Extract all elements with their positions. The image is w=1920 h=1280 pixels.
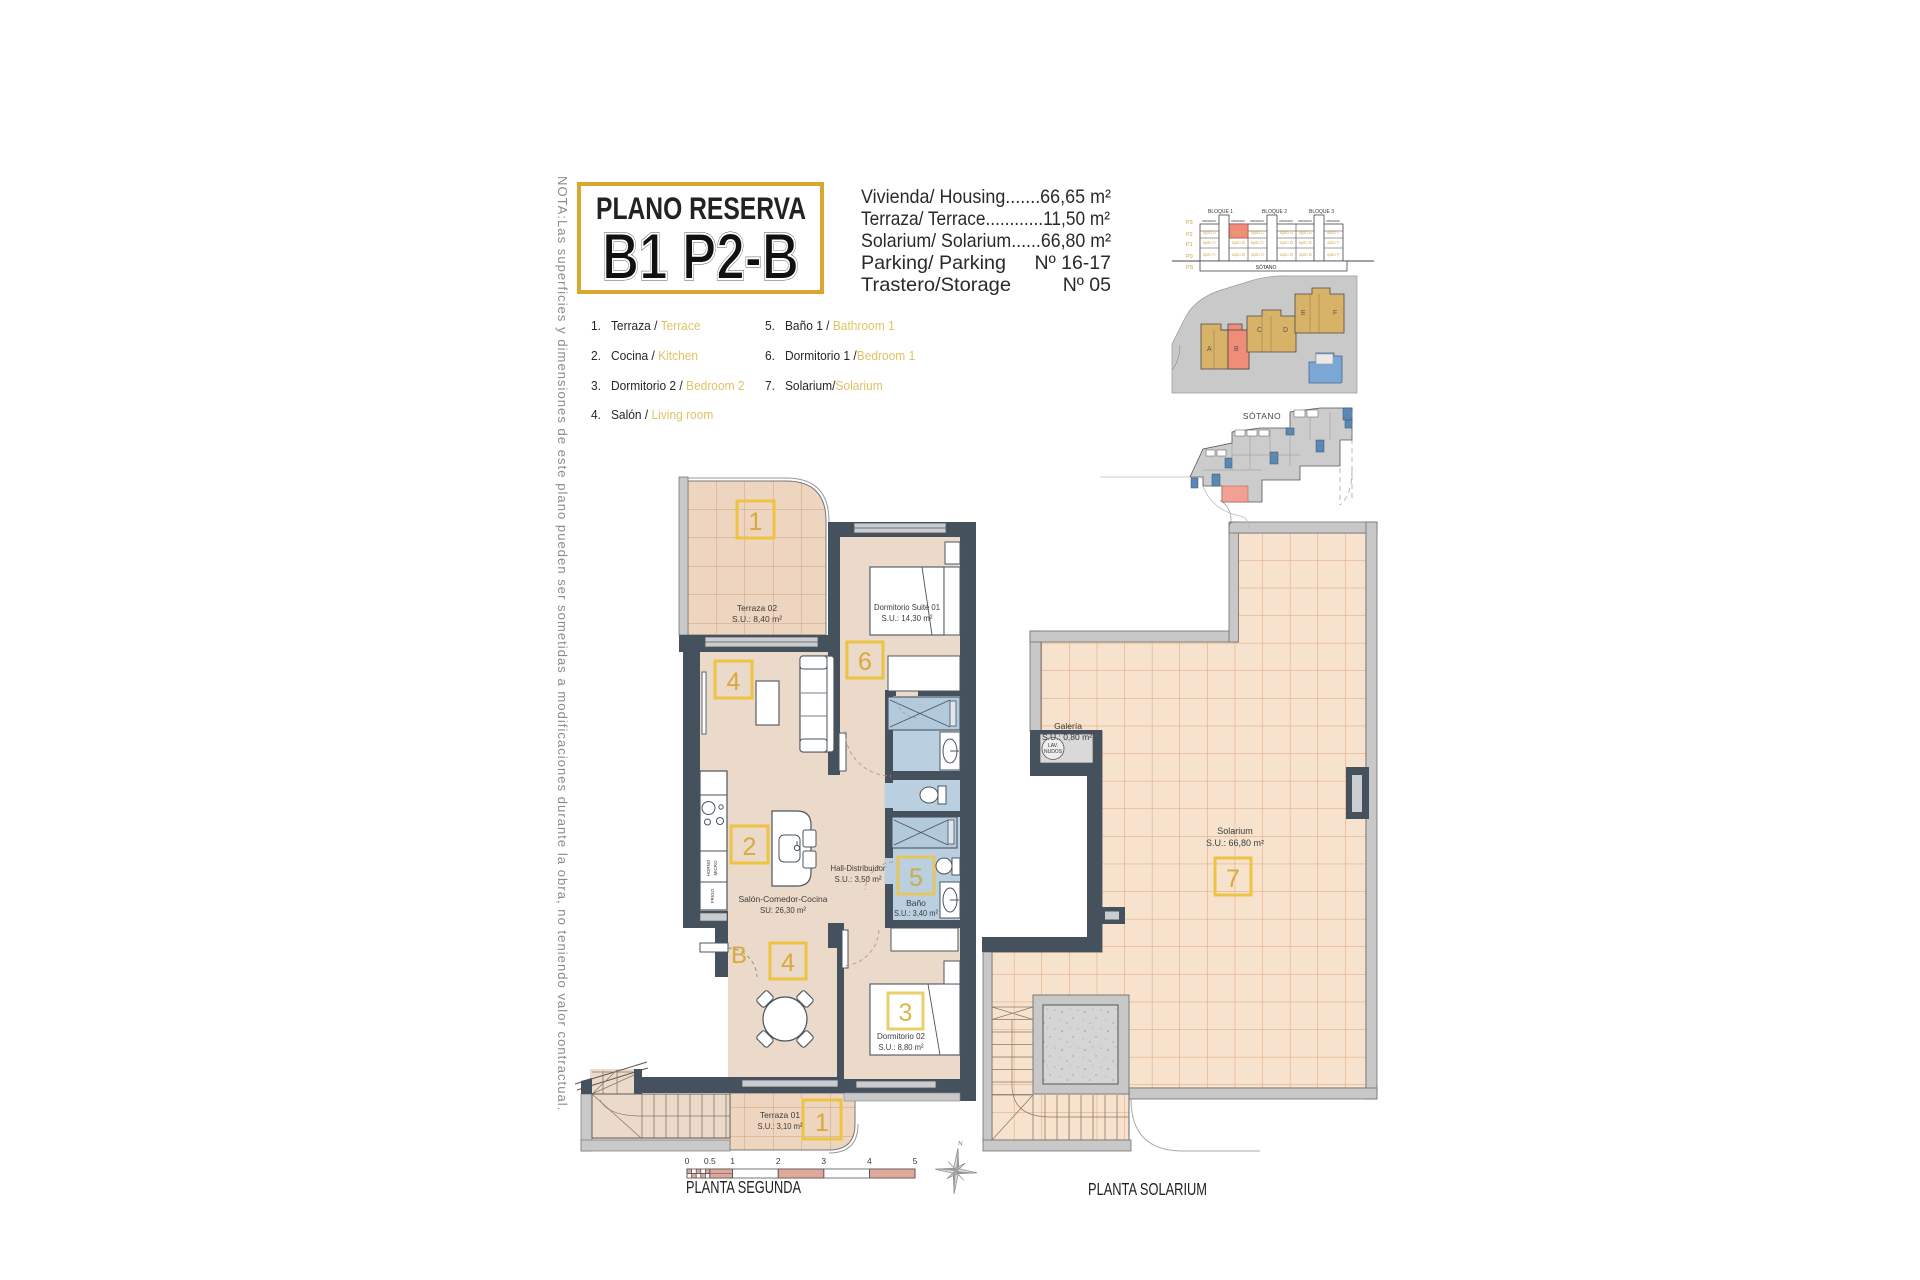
svg-text:apto A: apto A xyxy=(1203,230,1216,235)
svg-text:apto F: apto F xyxy=(1327,230,1340,235)
svg-text:P3: P3 xyxy=(1186,220,1193,226)
svg-text:SÓTANO: SÓTANO xyxy=(1256,264,1277,271)
svg-text:E: E xyxy=(1301,310,1306,317)
svg-text:apto B: apto B xyxy=(1232,230,1245,235)
svg-text:1: 1 xyxy=(749,508,763,536)
svg-text:apto B: apto B xyxy=(1232,240,1245,245)
svg-text:Terraza 01: Terraza 01 xyxy=(760,1110,800,1120)
svg-text:B: B xyxy=(1234,346,1239,353)
svg-text:apto E: apto E xyxy=(1299,252,1312,257)
svg-text:S.U.: 8,40 m²: S.U.: 8,40 m² xyxy=(732,614,782,624)
svg-text:4: 4 xyxy=(867,1156,872,1166)
svg-text:Baño: Baño xyxy=(906,898,926,908)
svg-text:F: F xyxy=(1333,310,1337,317)
svg-text:S.U.: 66,80 m²: S.U.: 66,80 m² xyxy=(1206,838,1264,848)
svg-text:ARMARIO: ARMARIO xyxy=(1231,219,1246,223)
svg-text:apto D: apto D xyxy=(1280,230,1294,235)
svg-text:PS: PS xyxy=(1186,265,1194,271)
svg-text:S.U.: 3,40 m²: S.U.: 3,40 m² xyxy=(894,908,938,918)
svg-text:ARMARIO: ARMARIO xyxy=(1298,219,1313,223)
svg-text:6: 6 xyxy=(858,648,872,676)
svg-text:S.U.: 3,50 m²: S.U.: 3,50 m² xyxy=(835,874,882,884)
svg-text:S.U.: 0,80 m²: S.U.: 0,80 m² xyxy=(1042,732,1092,742)
svg-text:ARMARIO: ARMARIO xyxy=(1202,219,1217,223)
svg-text:5: 5 xyxy=(909,864,923,892)
svg-text:MICRO: MICRO xyxy=(713,860,718,875)
svg-text:3: 3 xyxy=(899,999,913,1027)
svg-text:PLANTA SEGUNDA: PLANTA SEGUNDA xyxy=(686,1177,801,1197)
svg-text:0.5: 0.5 xyxy=(704,1156,716,1166)
svg-text:apto E: apto E xyxy=(1299,240,1312,245)
svg-text:0: 0 xyxy=(685,1156,690,1166)
svg-text:2: 2 xyxy=(743,833,757,861)
svg-text:Dormitorio Suite 01: Dormitorio Suite 01 xyxy=(874,602,940,612)
svg-text:P0: P0 xyxy=(1186,254,1193,260)
svg-text:4: 4 xyxy=(727,668,741,696)
svg-text:P1: P1 xyxy=(1186,242,1193,248)
svg-text:ARMARIO: ARMARIO xyxy=(1326,219,1341,223)
svg-text:apto D: apto D xyxy=(1280,252,1294,257)
svg-text:PLANTA SOLARIUM: PLANTA SOLARIUM xyxy=(1088,1179,1207,1199)
svg-text:4: 4 xyxy=(781,949,795,977)
svg-text:SU: 26,30 m²: SU: 26,30 m² xyxy=(760,905,806,915)
svg-text:Terraza 02: Terraza 02 xyxy=(737,603,777,613)
svg-text:NUDOS: NUDOS xyxy=(1044,749,1063,755)
svg-text:HORNO: HORNO xyxy=(706,859,711,876)
svg-text:1: 1 xyxy=(815,1109,829,1137)
svg-text:ARMARIO: ARMARIO xyxy=(1250,219,1265,223)
svg-text:S.U.: 14,30 m²: S.U.: 14,30 m² xyxy=(882,613,933,623)
svg-text:apto C: apto C xyxy=(1251,240,1265,245)
svg-text:C: C xyxy=(1257,327,1262,334)
svg-text:A: A xyxy=(1207,346,1212,353)
svg-text:apto B: apto B xyxy=(1232,252,1245,257)
svg-text:2: 2 xyxy=(776,1156,781,1166)
svg-text:SÓTANO: SÓTANO xyxy=(1243,411,1281,421)
svg-text:Solarium: Solarium xyxy=(1217,826,1253,836)
svg-text:apto E: apto E xyxy=(1299,230,1312,235)
svg-text:ARMARIO: ARMARIO xyxy=(1279,219,1294,223)
svg-text:apto D: apto D xyxy=(1280,240,1294,245)
svg-text:apto A: apto A xyxy=(1203,240,1216,245)
svg-text:apto A: apto A xyxy=(1203,252,1216,257)
svg-text:Salón-Comedor-Cocina: Salón-Comedor-Cocina xyxy=(739,894,828,904)
svg-text:FRIGO: FRIGO xyxy=(710,888,715,903)
svg-text:Hall-Distribuidor: Hall-Distribuidor xyxy=(831,863,886,873)
svg-text:apto C: apto C xyxy=(1251,230,1265,235)
svg-text:3: 3 xyxy=(821,1156,826,1166)
svg-text:S.U.: 8,80 m²: S.U.: 8,80 m² xyxy=(879,1042,924,1052)
svg-text:N: N xyxy=(958,1141,963,1147)
svg-text:BLOQUE 1: BLOQUE 1 xyxy=(1208,209,1233,215)
svg-text:S.U.: 3,10 m²: S.U.: 3,10 m² xyxy=(758,1121,803,1131)
svg-text:apto F: apto F xyxy=(1327,252,1340,257)
svg-text:P2: P2 xyxy=(1186,232,1193,238)
svg-text:Galería: Galería xyxy=(1054,721,1082,731)
svg-text:7: 7 xyxy=(1226,865,1240,893)
svg-text:apto C: apto C xyxy=(1251,252,1265,257)
svg-text:Dormitorio 02: Dormitorio 02 xyxy=(877,1031,925,1041)
svg-text:BLOQUE 3: BLOQUE 3 xyxy=(1309,209,1334,215)
svg-text:1: 1 xyxy=(730,1156,735,1166)
svg-text:BLOQUE 2: BLOQUE 2 xyxy=(1262,209,1287,215)
svg-text:apto F: apto F xyxy=(1327,240,1340,245)
svg-text:D: D xyxy=(1283,327,1288,334)
svg-text:5: 5 xyxy=(913,1156,918,1166)
svg-text:B: B xyxy=(731,942,747,969)
